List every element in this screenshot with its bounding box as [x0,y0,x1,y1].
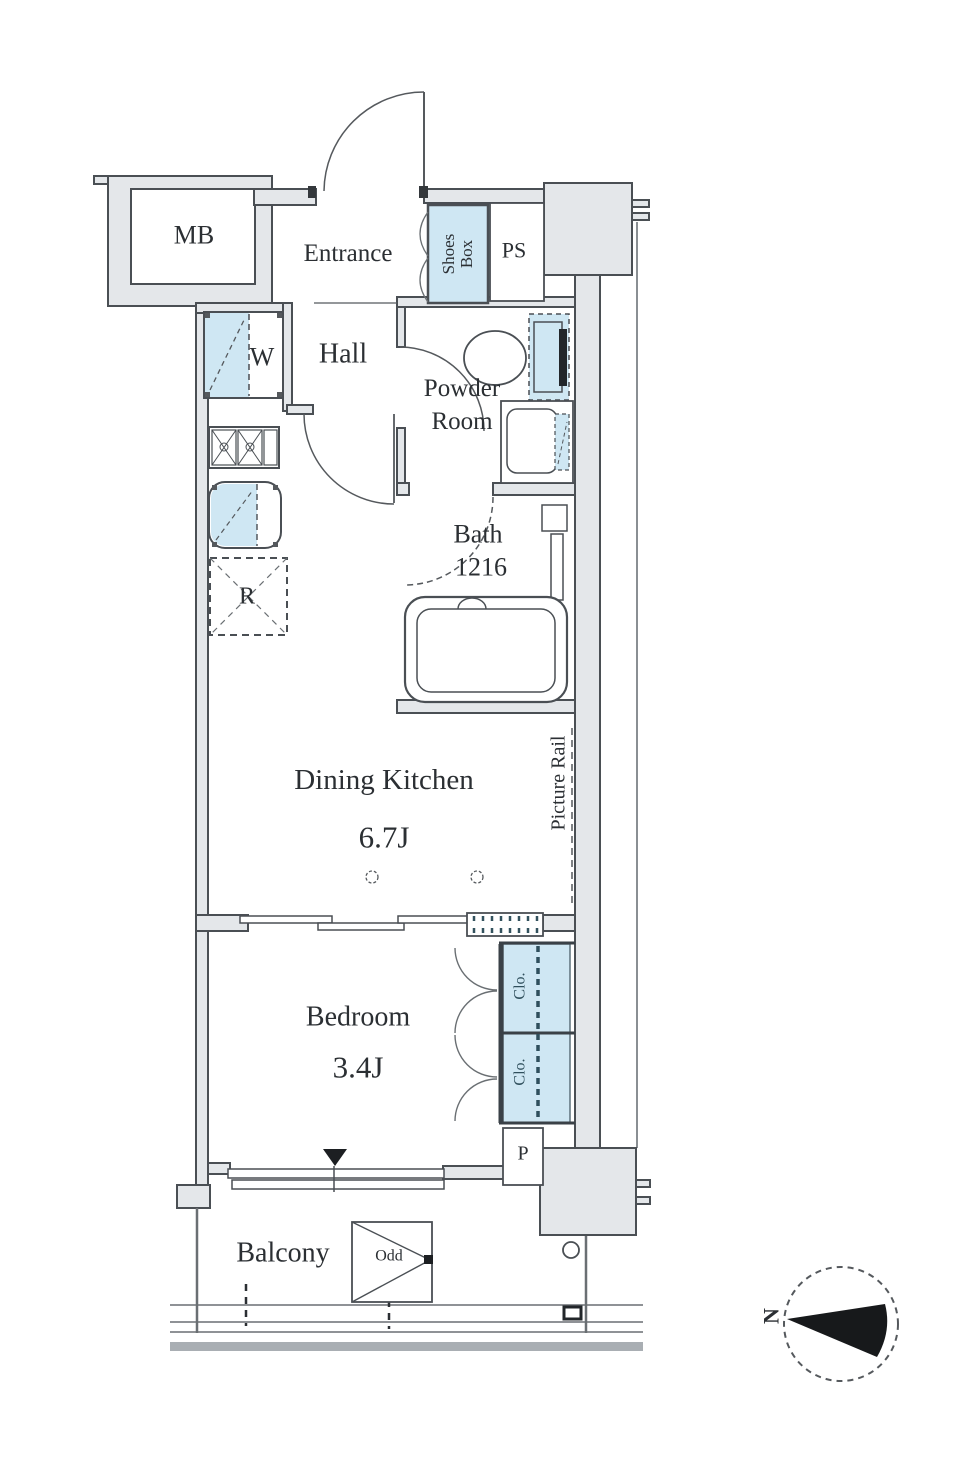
room-label-fridge: R [239,584,255,609]
label-floor-indicator: Odd [375,1249,403,1266]
stove-icon [209,427,279,468]
label-pipe-space: P [517,1144,528,1165]
floor-outlet-icons [366,871,483,883]
top-right-column [544,183,632,275]
room-label-bath: Bath [453,520,502,547]
label-picture-rail: Picture Rail [549,736,570,831]
right-wall [575,275,600,1150]
compass-icon [784,1267,898,1381]
hatched-wall-icon [467,913,543,936]
opening-marker-icon [323,1149,347,1166]
room-label-balcony: Balcony [236,1238,329,1267]
room-label-hall: Hall [319,339,367,368]
room-label-bath-size: 1216 [455,553,507,580]
entrance-door-icon [308,92,428,303]
floorplan-drawing [0,0,960,1467]
room-label-powder-2: Room [431,409,492,435]
pole-icon [563,1242,579,1258]
bottom-right-column [540,1148,636,1235]
label-compass-north: N [759,1308,782,1324]
shoes-box-line1: Shoes [440,234,458,275]
sliding-partition-icon [240,916,470,930]
closet-icon [455,943,575,1123]
room-label-entrance: Entrance [304,241,393,267]
room-label-bedroom-size: 3.4J [333,1052,384,1085]
corner-block [177,1185,210,1208]
room-label-ps: PS [502,238,526,261]
room-label-mb: MB [174,221,214,248]
kitchen-sink-icon [209,482,281,548]
room-label-powder-1: Powder [424,376,500,402]
floorplan-canvas: MB Entrance Shoes Box PS W Hall Powder R… [0,0,960,1467]
washbasin-icon [501,401,573,483]
hall-dk-door-icon [304,414,394,504]
balcony-window-icon [228,1166,444,1192]
room-label-shoes-box: Shoes Box [440,234,476,275]
label-closet-upper: Clo. [513,972,530,999]
shoes-box-line2: Box [458,234,476,275]
closet-door-arcs [455,948,497,1121]
left-wall [196,303,208,1185]
room-label-dining-kitchen: Dining Kitchen [294,765,474,795]
label-closet-lower: Clo. [513,1058,530,1085]
room-label-washer: W [250,343,275,370]
bathtub-icon [405,597,567,702]
drain-icon [564,1307,581,1319]
room-label-bedroom: Bedroom [306,1002,410,1031]
room-label-dk-size: 6.7J [359,822,410,855]
